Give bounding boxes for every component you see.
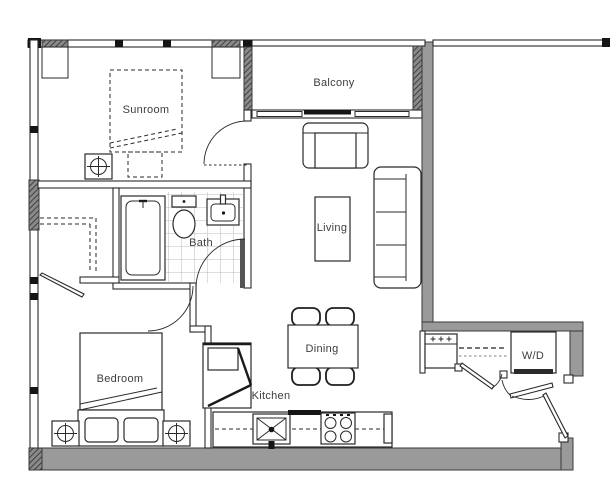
pillow-icon: [124, 418, 158, 442]
wall-hatch-segment: [212, 40, 240, 47]
chair-icon: [326, 367, 354, 385]
sofa-icon: [374, 167, 421, 288]
laundry-west-stub: [420, 331, 425, 373]
bathtub-icon: [121, 196, 165, 280]
window-mullion: [163, 40, 171, 47]
room-bath: [121, 192, 245, 288]
balcony-railing: [252, 40, 425, 46]
window-mullion: [30, 126, 38, 133]
door-jamb: [564, 375, 573, 383]
label-dining: Dining: [306, 343, 339, 355]
label-laundry: W/D: [522, 350, 544, 362]
east-entry-wall: [570, 331, 583, 376]
floor-plan: Sunroom Balcony Living Bath Bedroom Dini…: [0, 0, 610, 500]
label-balcony: Balcony: [313, 77, 354, 89]
closet-south-wall: [80, 277, 119, 283]
drain-icon: [222, 211, 225, 214]
label-living: Living: [317, 222, 348, 234]
hall-closet: [203, 343, 251, 408]
label-kitchen: Kitchen: [252, 390, 291, 402]
chair-icon: [326, 308, 354, 326]
chair-icon: [292, 367, 320, 385]
wall-hatch-segment: [42, 40, 68, 47]
window-mullion: [30, 277, 38, 284]
washer-dryer-door: [514, 369, 553, 374]
window-mullion: [243, 40, 252, 47]
east-wall: [422, 42, 433, 323]
bath-south-wall: [113, 283, 196, 289]
label-bedroom: Bedroom: [97, 373, 144, 385]
neighbor-railing: [433, 40, 610, 46]
west-window-wall: [30, 40, 38, 448]
double-bed-icon: [80, 333, 162, 410]
bath-door-leaf: [240, 239, 245, 288]
balcony-east-wall: [413, 46, 422, 118]
window-mullion: [30, 293, 38, 300]
chair-icon: [292, 308, 320, 326]
toilet-icon: [173, 210, 195, 238]
label-bath: Bath: [189, 237, 213, 249]
closet-door-panel: [208, 348, 238, 370]
south-wall: [42, 448, 561, 470]
bath-west-wall: [113, 188, 119, 286]
sliding-door-leaf: [304, 110, 351, 115]
label-sunroom: Sunroom: [123, 104, 170, 116]
armchair-cushion: [315, 133, 356, 168]
window-mullion: [30, 387, 38, 394]
dishwasher-front: [288, 410, 321, 415]
sunroom-south-wall: [38, 181, 251, 188]
sink-drain-icon: [269, 427, 275, 433]
sink-faucet-icon: [221, 195, 226, 204]
sink-faucet-icon: [269, 441, 275, 449]
pillow-icon: [85, 418, 118, 442]
entry-door-post: [561, 438, 573, 470]
window-mullion: [115, 40, 123, 47]
balcony-west-wall: [244, 47, 252, 110]
laundry-north-wall: [422, 322, 583, 331]
sunroom-east-wall-upper: [244, 110, 251, 121]
counter-end-panel: [384, 414, 392, 443]
railing-end-block: [602, 38, 610, 47]
wall-hatch-segment: [29, 448, 42, 470]
room-kitchen: [213, 410, 392, 449]
